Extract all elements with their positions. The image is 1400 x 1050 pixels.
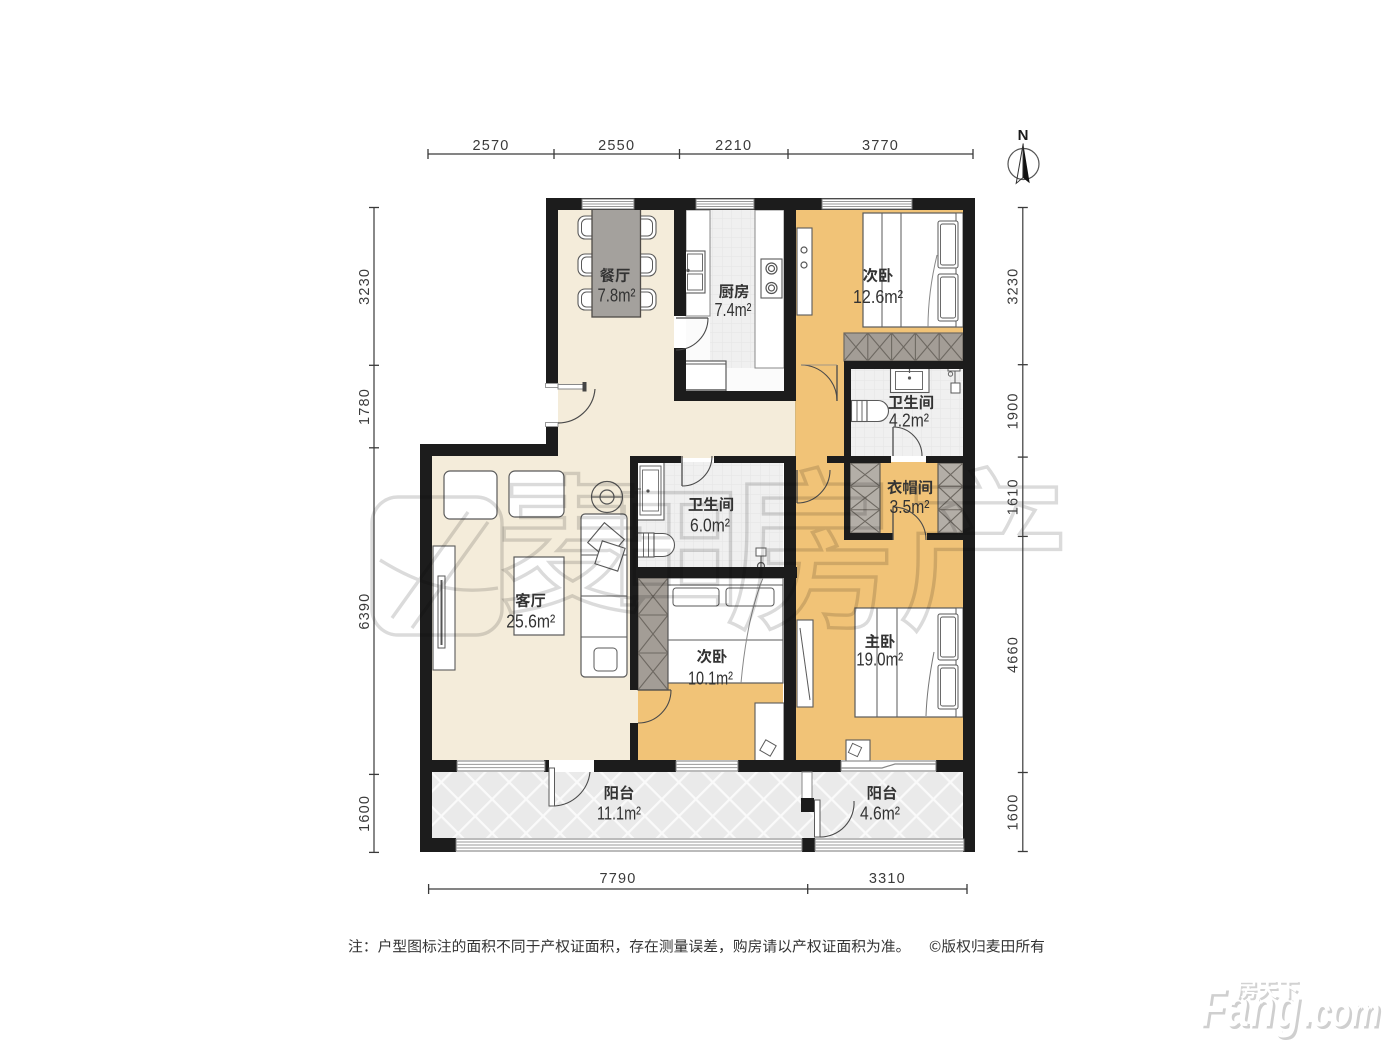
svg-text:12.6m²: 12.6m²	[853, 286, 903, 307]
svg-text:19.0m²: 19.0m²	[856, 649, 903, 670]
svg-text:2210: 2210	[715, 138, 752, 154]
svg-text:3310: 3310	[869, 871, 906, 887]
svg-text:.com: .com	[1303, 988, 1380, 1036]
svg-text:7.8m²: 7.8m²	[598, 285, 636, 306]
svg-text:10.1m²: 10.1m²	[688, 668, 733, 689]
svg-text:4.6m²: 4.6m²	[860, 803, 900, 824]
svg-text:2550: 2550	[598, 138, 635, 154]
svg-text:3230: 3230	[1006, 268, 1022, 305]
svg-text:11.1m²: 11.1m²	[597, 803, 641, 824]
svg-text:6.0m²: 6.0m²	[690, 515, 730, 536]
svg-text:1780: 1780	[357, 388, 373, 425]
svg-text:3.5m²: 3.5m²	[890, 496, 930, 517]
svg-text:7.4m²: 7.4m²	[715, 299, 752, 320]
svg-text:1600: 1600	[357, 795, 373, 832]
svg-text:4660: 4660	[1006, 636, 1022, 673]
svg-text:6390: 6390	[357, 593, 373, 630]
svg-text:1610: 1610	[1006, 478, 1022, 515]
svg-text:7790: 7790	[599, 871, 636, 887]
svg-text:25.6m²: 25.6m²	[506, 611, 555, 632]
svg-text:3230: 3230	[357, 268, 373, 305]
svg-text:2570: 2570	[472, 138, 509, 154]
svg-text:4.2m²: 4.2m²	[889, 410, 929, 431]
svg-text:3770: 3770	[862, 138, 899, 154]
svg-text:N: N	[1018, 127, 1029, 144]
svg-text:1600: 1600	[1006, 793, 1022, 830]
svg-text:1900: 1900	[1006, 392, 1022, 429]
